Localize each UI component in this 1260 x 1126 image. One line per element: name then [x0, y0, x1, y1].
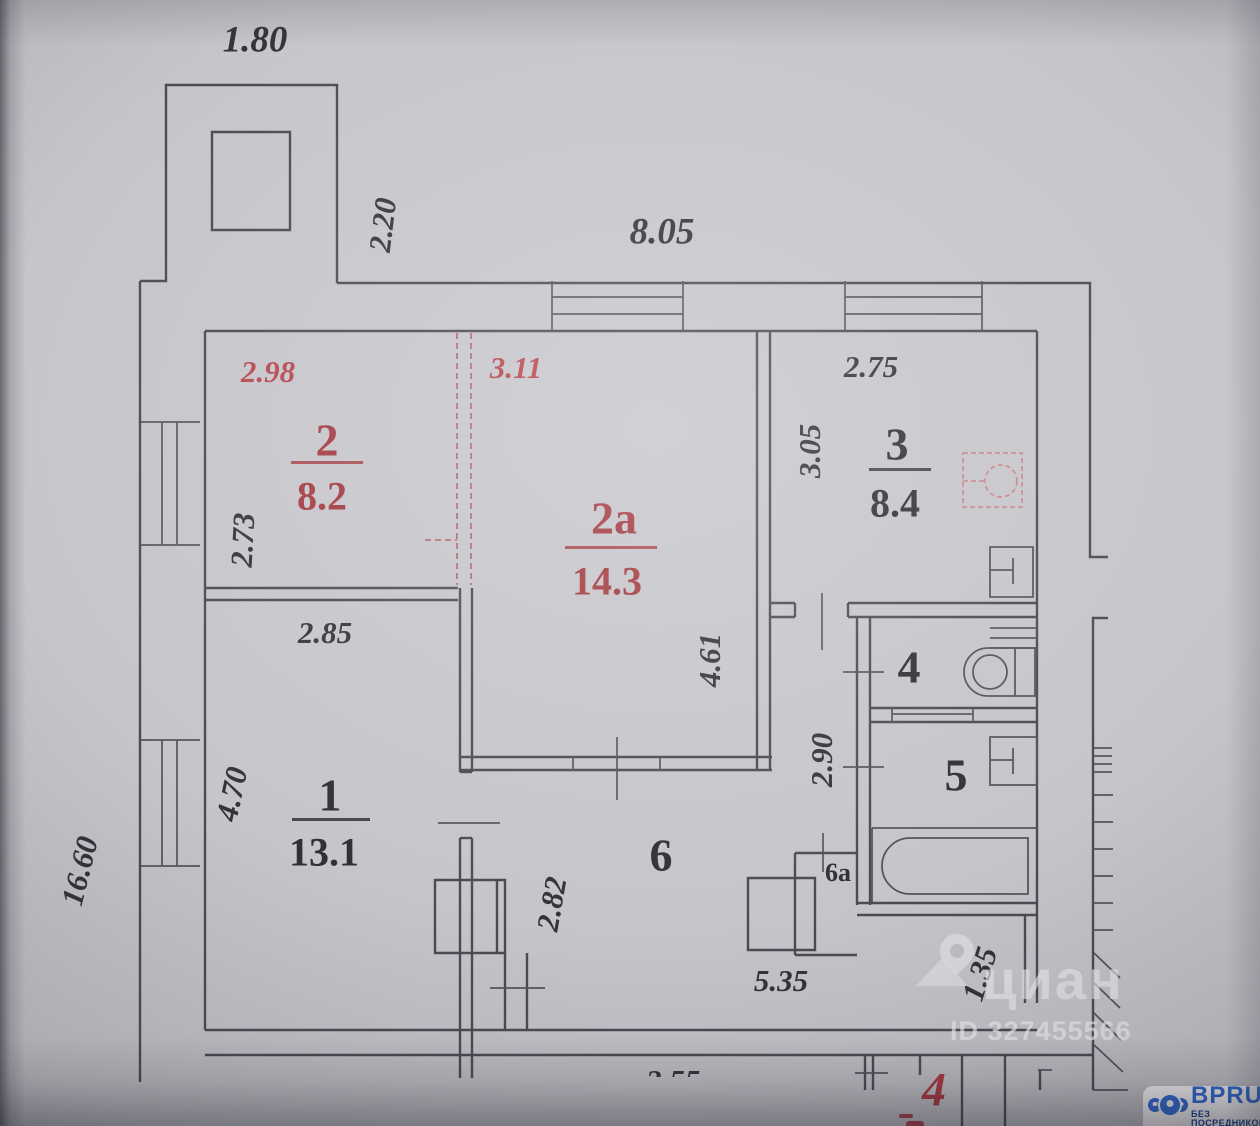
dim-label-3-11: 3.11: [490, 350, 543, 386]
dim-label-2-98: 2.98: [241, 354, 295, 390]
room-number-2a: 2a: [591, 492, 637, 545]
bathroom-fixtures-icon: [872, 547, 1037, 903]
room-area-1: 13.1: [289, 829, 359, 876]
dim-label-8-05: 8.05: [630, 211, 695, 254]
dim-label-5-35: 5.35: [754, 963, 808, 999]
dim-label-3-05: 3.05: [792, 424, 828, 478]
dim-label-2-85: 2.85: [298, 615, 352, 651]
dim-label-2-90: 2.90: [804, 733, 840, 787]
floor-plan-photo: 1.80 2.20 8.05 2.98 3.11 2.75 3.05 2.73 …: [0, 0, 1260, 1126]
room-area-2a: 14.3: [572, 558, 642, 605]
dim-label-1-80: 1.80: [223, 19, 288, 62]
removed-partition-dashed: [425, 333, 471, 585]
room-number-6a: 6a: [825, 858, 851, 888]
dim-label-2-75: 2.75: [844, 349, 898, 385]
room-2-underline: [291, 461, 363, 464]
room-area-3: 8.4: [870, 480, 920, 527]
room-1-underline: [292, 818, 370, 821]
bpru-people-icon: [1148, 1091, 1188, 1121]
room-number-2: 2: [316, 414, 339, 467]
red-pen-mark: [899, 1114, 913, 1118]
dim-label-2-55-partial: 2.55: [646, 1063, 736, 1077]
dim-label-2-20: 2.20: [362, 196, 404, 254]
dim-label-4-61: 4.61: [692, 633, 728, 687]
room-number-3: 3: [886, 418, 909, 471]
stove-icon: [963, 453, 1022, 507]
apartment-number-label: 4: [922, 1063, 946, 1118]
room-number-1: 1: [319, 769, 342, 822]
badge-brand: BPRU: [1191, 1084, 1260, 1108]
dim-label-2-73: 2.73: [224, 512, 263, 568]
room-2a-underline: [565, 546, 657, 549]
room-number-4: 4: [898, 641, 921, 694]
badge-tagline: БЕЗ ПОСРЕДНИКОВ: [1191, 1110, 1260, 1126]
room-number-5: 5: [945, 749, 968, 802]
red-pen-mark-partial: [906, 1121, 924, 1126]
room-number-6: 6: [650, 829, 673, 882]
room-3-underline: [869, 468, 931, 471]
bpru-badge: BPRU БЕЗ ПОСРЕДНИКОВ: [1143, 1086, 1260, 1126]
room-area-2: 8.2: [297, 473, 347, 520]
